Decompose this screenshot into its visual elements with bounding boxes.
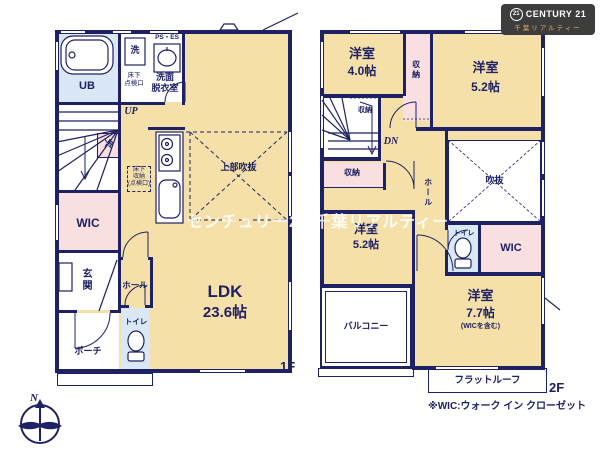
room-label-2f-52a-size: 5.2帖 (433, 80, 538, 94)
compass-north-icon (14, 396, 66, 448)
room-label-2f-52b-size: 5.2帖 (320, 239, 412, 252)
flat-roof: フラットルーフ (428, 368, 547, 393)
roof-line (220, 13, 298, 30)
compass-n-label: N (30, 392, 38, 405)
floor-label-2f: 2F (549, 380, 564, 395)
century21-logo: 21 CENTURY 21 千葉リアルティー (501, 4, 595, 35)
porch-step (57, 373, 153, 386)
room-label-ub: UB (67, 80, 107, 93)
brand-name: CENTURY 21 (526, 9, 587, 19)
room-label-wic-2f: WIC (481, 242, 541, 255)
room-label-senmen: 洗面 脱衣室 (147, 72, 183, 94)
logo-row: 21 CENTURY 21 (510, 8, 587, 21)
room-label-closet-c: 収納 (328, 168, 376, 178)
wic-footnote: ※WIC:ウォーク イン クローゼット (428, 397, 586, 412)
floor-label-1f: 1F (280, 359, 295, 374)
room-label-balcony: バルコニー (320, 321, 412, 332)
brand-subtitle: 千葉リアルティー (514, 22, 582, 32)
floor-plan-page: 21 CENTURY 21 千葉リアルティー (0, 0, 600, 450)
stairs-down-label: DN (378, 136, 404, 148)
room-label-wic: WIC (63, 216, 113, 230)
floor-plan-1f: UB 洗 PS・ES 洗面 脱衣室 床下 点検口 UP 冷 床下 収納 (点検口… (55, 30, 292, 373)
room-label-hall-2f: ホール (423, 178, 433, 208)
room-label-fukinuke: 吹抜 (448, 175, 541, 186)
room-label-2f-40: 洋室 (322, 46, 402, 62)
room-label-washer: 洗 (126, 45, 144, 56)
bathtub-icon (61, 36, 113, 74)
room-label-2f-77: 洋室 (428, 288, 533, 304)
room-label-porch: ポーチ (65, 346, 111, 357)
room-label-underfloor-storage: 床下 収納 (点検口) (125, 167, 153, 189)
room-label-fridge: 冷 (99, 139, 119, 150)
flat-roof-label: フラットルーフ (429, 375, 546, 386)
room-label-2f-52a: 洋室 (433, 60, 538, 76)
stairs-up-label: UP (119, 106, 143, 118)
room-label-joubu-fukinuke: 上部吹抜 (190, 162, 287, 173)
watermark-text: センチュリー21 千葉リアルティー (187, 208, 449, 232)
room-label-ldk: LDK (170, 282, 280, 302)
kitchen-counter-icon (156, 132, 183, 223)
room-label-genkan: 玄関 (79, 268, 91, 292)
room-label-2f-77-note: (WICを含む) (428, 323, 533, 331)
stairs-up (57, 112, 118, 190)
toilet-icon (455, 238, 471, 268)
room-label-yukashita-tenken: 床下 点検口 (121, 72, 147, 88)
room-label-2f-40-size: 4.0帖 (322, 64, 402, 78)
room-label-2f-77-size: 7.7帖 (428, 306, 533, 320)
room-label-closet-b: 収納 (352, 107, 378, 115)
floor-plan-2f: 洋室 4.0帖 収納 洋室 5.2帖 収納 DN 収納 ホール 吹抜 洋室 5.… (320, 30, 545, 370)
toilet-icon (128, 331, 144, 361)
room-label-ps-es: PS・ES (151, 34, 183, 42)
sink-icon (154, 44, 180, 72)
room-label-closet-a: 収納 (411, 60, 421, 80)
room-label-toilet-1f: トイレ (119, 317, 153, 326)
void-above-dashed (186, 132, 287, 220)
room-label-toilet-2f: トイレ (450, 230, 478, 238)
room-label-ldk-size: 23.6帖 (170, 304, 280, 322)
room-label-hall-1f: ホール (117, 280, 153, 290)
century21-badge-icon: 21 (510, 8, 523, 21)
